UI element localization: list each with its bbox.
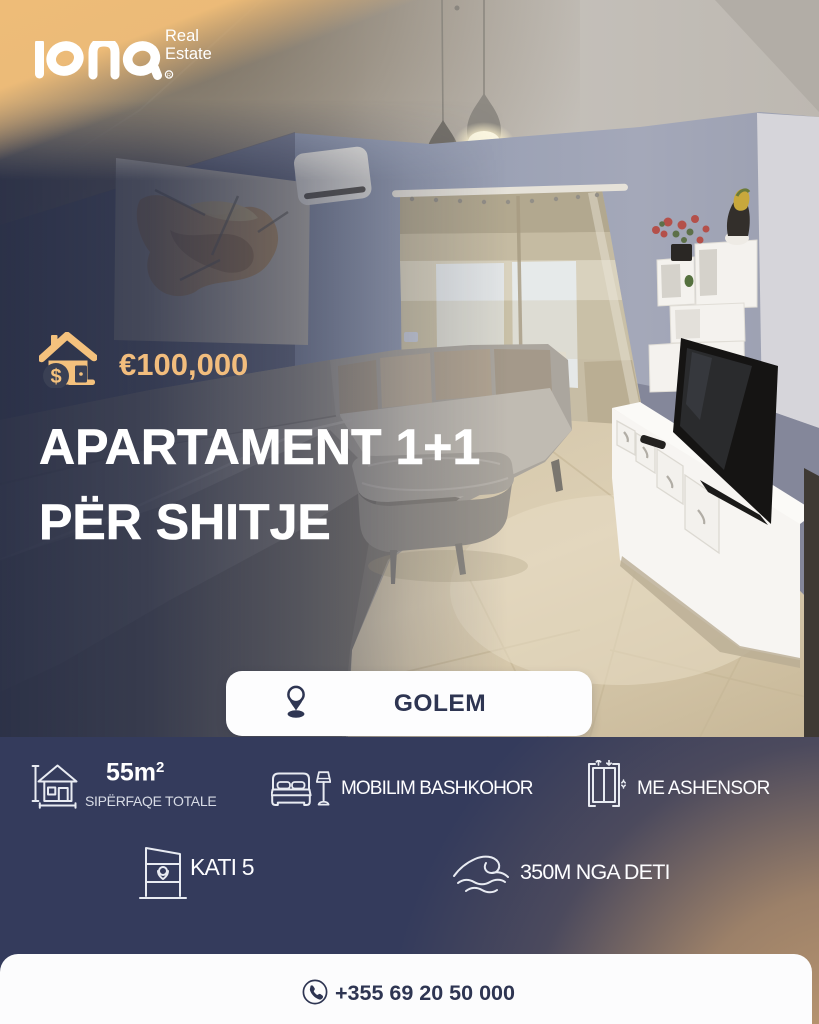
svg-text:R: R — [167, 73, 171, 79]
svg-text:$: $ — [50, 366, 61, 388]
